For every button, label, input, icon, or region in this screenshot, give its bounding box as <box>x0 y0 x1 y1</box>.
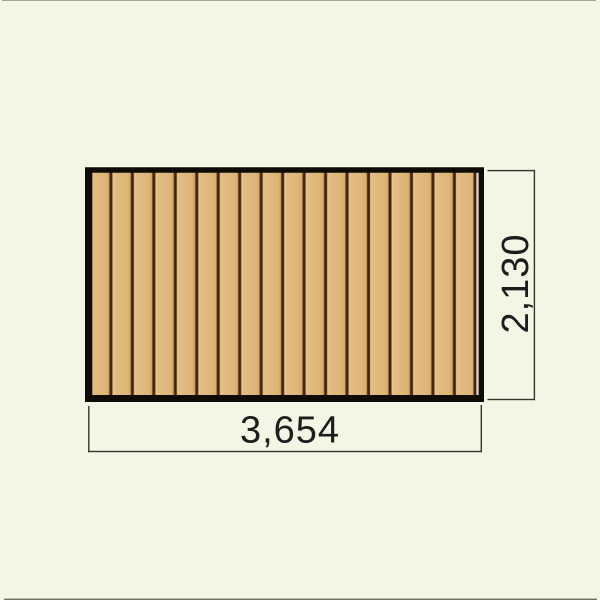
svg-text:2,130: 2,130 <box>495 233 537 333</box>
svg-text:3,654: 3,654 <box>240 410 340 452</box>
